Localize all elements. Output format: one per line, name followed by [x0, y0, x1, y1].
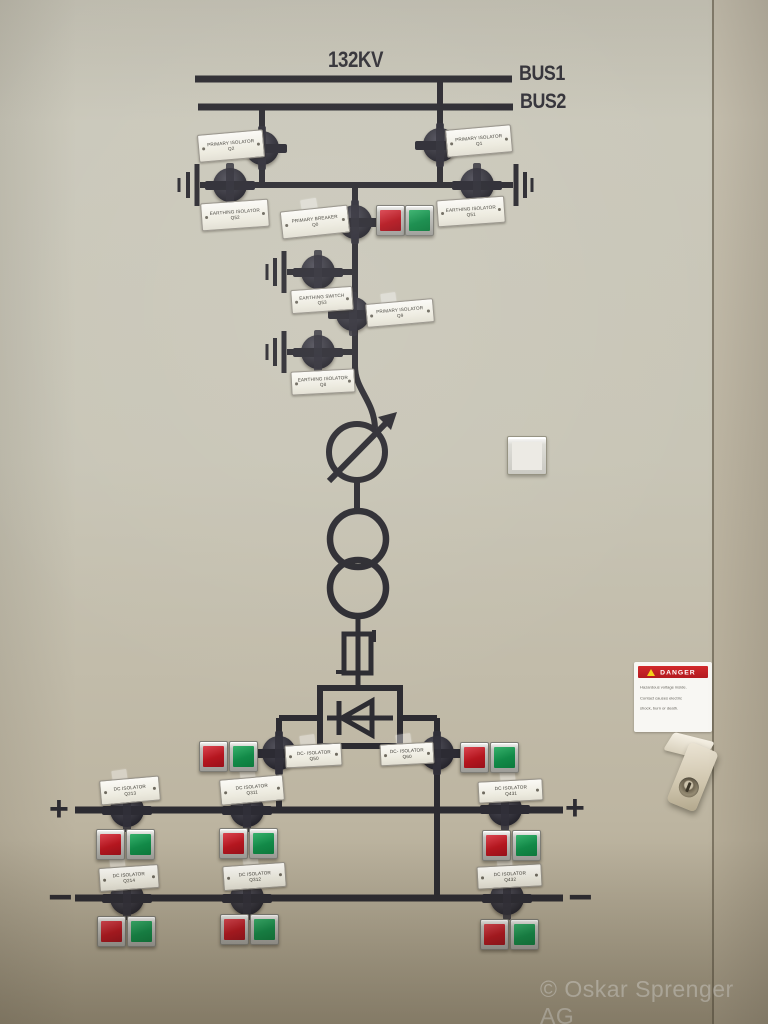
green-pushbutton-q214[interactable]	[127, 916, 156, 947]
green-pushbutton-q432[interactable]	[510, 919, 539, 950]
green-button-face	[514, 924, 535, 945]
red-pushbutton-q431[interactable]	[482, 830, 511, 861]
red-pushbutton-q214[interactable]	[97, 916, 126, 947]
key-slot	[685, 782, 692, 792]
label-plate-q8: EARTHING ISOLATORQ8	[290, 368, 355, 395]
danger-body-text: Hazardous voltage inside. Contact causes…	[640, 683, 721, 715]
green-pushbutton-q213[interactable]	[126, 829, 155, 860]
rotary-switch-q53[interactable]	[301, 255, 335, 289]
earth-symbol-right	[516, 164, 532, 206]
red-button-face	[464, 747, 485, 768]
mimic-control-panel: 132KV BUS1 BUS2 + + − − PRIMARY ISOLATOR…	[0, 0, 768, 1024]
plus-sign-right: +	[565, 791, 585, 825]
regulator-symbol	[329, 412, 397, 481]
label-plate-q2: PRIMARY ISOLATORQ2	[197, 129, 265, 163]
green-button-face	[494, 747, 515, 768]
earth-symbol-left	[179, 164, 197, 206]
rotary-switch-q52[interactable]	[213, 168, 247, 202]
door-handle[interactable]	[660, 733, 732, 821]
red-button-face	[101, 921, 122, 942]
green-pushbutton-q312[interactable]	[250, 914, 279, 945]
red-button-face	[380, 210, 401, 231]
green-pushbutton-q0[interactable]	[405, 205, 434, 236]
earth-symbol-q53	[267, 251, 284, 293]
label-plate-q214: DC ISOLATORQ214	[98, 864, 160, 892]
label-plate-q60: DC- ISOLATORQ60	[379, 742, 434, 767]
red-button-face	[486, 835, 507, 856]
white-indicator-lamp[interactable]	[507, 436, 547, 475]
green-button-face	[409, 210, 430, 231]
photo-watermark: © Oskar Sprenger AG	[540, 976, 768, 1024]
green-button-face	[253, 833, 274, 854]
label-plate-q432: DC ISOLATORQ432	[476, 863, 542, 889]
green-button-face	[516, 835, 537, 856]
green-pushbutton-q311[interactable]	[249, 828, 278, 859]
label-plate-q311: DC ISOLATORQ311	[219, 774, 285, 805]
green-pushbutton-q50[interactable]	[229, 741, 258, 772]
red-button-face	[100, 834, 121, 855]
red-pushbutton-q311[interactable]	[219, 828, 248, 859]
rectifier-symbol	[320, 688, 400, 746]
red-button-face	[484, 924, 505, 945]
label-plate-q431: DC ISOLATORQ431	[477, 778, 543, 803]
warning-triangle-icon	[647, 669, 655, 676]
green-button-face	[254, 919, 275, 940]
label-plate-q213: DC ISOLATORQ213	[99, 775, 161, 805]
red-pushbutton-q213[interactable]	[96, 829, 125, 860]
green-pushbutton-q431[interactable]	[512, 830, 541, 861]
rotary-switch-q8[interactable]	[301, 335, 335, 369]
green-button-face	[130, 834, 151, 855]
label-plate-q51: EARTHING ISOLATORQ51	[436, 196, 506, 228]
plus-sign-left: +	[49, 792, 69, 826]
red-pushbutton-q312[interactable]	[220, 914, 249, 945]
label-plate-q312: DC ISOLATORQ312	[222, 862, 287, 891]
label-plate-q1: PRIMARY ISOLATORQ1	[445, 124, 513, 158]
minus-sign-left: −	[48, 876, 73, 918]
green-button-face	[131, 921, 152, 942]
label-plate-q52: EARTHING ISOLATORQ52	[200, 199, 270, 232]
red-pushbutton-q0[interactable]	[376, 205, 405, 236]
fuse-symbol	[336, 615, 374, 688]
red-pushbutton-q60[interactable]	[460, 742, 489, 773]
red-button-face	[223, 833, 244, 854]
lamp-face	[512, 442, 542, 470]
keyhole-icon[interactable]	[675, 774, 701, 800]
label-plate-q50: DC- ISOLATORQ50	[284, 743, 342, 769]
bus2-label: BUS2	[520, 90, 574, 114]
green-button-face	[233, 746, 254, 767]
transformer-symbol	[330, 480, 386, 616]
green-pushbutton-q60[interactable]	[490, 742, 519, 773]
bus1-label: BUS1	[519, 62, 573, 86]
red-button-face	[224, 919, 245, 940]
label-plate-q53: EARTHING SWITCHQ53	[290, 286, 354, 314]
danger-sticker: DANGER Hazardous voltage inside. Contact…	[634, 662, 712, 732]
minus-sign-right: −	[568, 876, 593, 918]
red-button-face	[203, 746, 224, 767]
red-pushbutton-q50[interactable]	[199, 741, 228, 772]
voltage-title: 132KV	[328, 47, 393, 73]
danger-header: DANGER	[638, 666, 708, 678]
earth-symbol-q8	[267, 331, 284, 373]
red-pushbutton-q432[interactable]	[480, 919, 509, 950]
